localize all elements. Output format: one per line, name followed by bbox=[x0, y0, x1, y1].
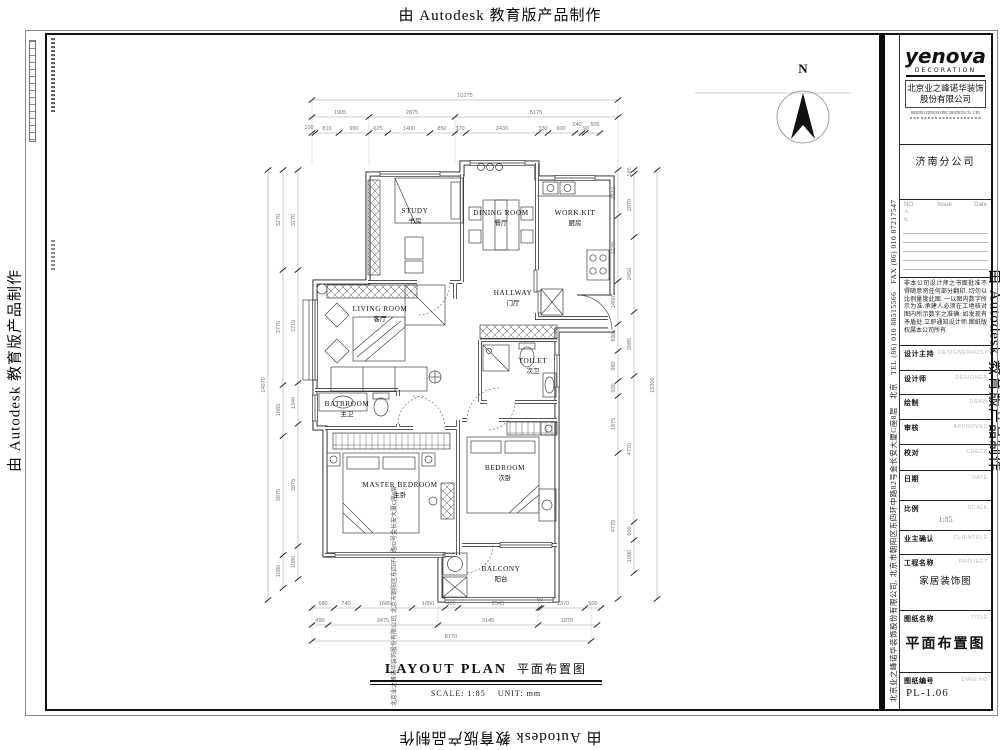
svg-text:505: 505 bbox=[590, 122, 599, 128]
svg-text:1870: 1870 bbox=[561, 618, 573, 624]
company-name-en: BEIJING YENOVO DECORATION CO., LTD bbox=[905, 110, 987, 115]
svg-text:1050: 1050 bbox=[422, 601, 434, 607]
field-designer: 设计师DESIGNER bbox=[900, 371, 991, 395]
svg-text:890: 890 bbox=[611, 332, 617, 341]
room-label-bathroom-zh: 主卫 bbox=[341, 409, 355, 418]
svg-text:900: 900 bbox=[556, 126, 565, 132]
layout-plan-title: LAYOUT PLAN 平面布置图 SCALE: 1:85 UNIT: mm bbox=[370, 660, 602, 698]
autodesk-watermark-left: 由 Autodesk 教育版产品制作 bbox=[4, 261, 25, 481]
room-label-workkit-zh: 厨房 bbox=[569, 218, 582, 227]
svg-text:1080: 1080 bbox=[627, 550, 633, 562]
sheet-border-top bbox=[45, 33, 993, 35]
room-label-dining-zh: 餐厅 bbox=[495, 218, 509, 227]
north-arrow: N bbox=[695, 61, 851, 143]
doors bbox=[398, 270, 616, 573]
cad-sheet: { "watermark": "由 Autodesk 教育版产品制作", "no… bbox=[0, 0, 1000, 750]
svg-text:90: 90 bbox=[583, 126, 589, 132]
titleblock-revision-section: NO. Issue Date A K bbox=[900, 200, 991, 278]
svg-text:1340: 1340 bbox=[291, 397, 297, 409]
svg-text:1665: 1665 bbox=[276, 404, 282, 416]
svg-text:3475: 3475 bbox=[377, 618, 389, 624]
svg-text:240: 240 bbox=[572, 122, 581, 128]
field-title: 图纸名称TITLE 平面布置图 bbox=[900, 611, 991, 673]
svg-text:3145: 3145 bbox=[482, 618, 494, 624]
svg-text:2085: 2085 bbox=[627, 338, 633, 350]
svg-text:2545: 2545 bbox=[492, 601, 504, 607]
room-label-hallway: HALLWAY bbox=[494, 289, 533, 297]
windows bbox=[313, 161, 596, 603]
title-block: yenova DECORATION 北京业之峰诺华装饰 股份有限公司 BEIJI… bbox=[900, 33, 991, 711]
fold-mark-bar bbox=[879, 33, 885, 711]
rev-empty-lines bbox=[903, 225, 988, 270]
room-label-toilet: TOILET bbox=[519, 357, 548, 365]
titleblock-note-section: 非本公司设计师之书面批准不得随意将任何部分翻印. 切勿以比例量度此图. 一以图内… bbox=[900, 278, 991, 346]
svg-text:8770: 8770 bbox=[445, 634, 457, 640]
svg-text:3270: 3270 bbox=[291, 214, 297, 226]
svg-text:600: 600 bbox=[627, 526, 633, 535]
svg-text:10275: 10275 bbox=[457, 93, 473, 99]
svg-text:3975: 3975 bbox=[291, 479, 297, 491]
room-label-study: STUDY bbox=[402, 207, 429, 215]
field-check: 校对CHECK bbox=[900, 445, 991, 471]
svg-text:100: 100 bbox=[304, 125, 313, 131]
svg-text:1080: 1080 bbox=[291, 556, 297, 568]
field-approved: 审核APPROVED bbox=[900, 420, 991, 445]
svg-text:2875: 2875 bbox=[406, 110, 418, 116]
branch-name: 济南分公司 bbox=[900, 145, 991, 168]
svg-text:500: 500 bbox=[588, 601, 597, 607]
svg-text:490: 490 bbox=[315, 618, 324, 624]
room-label-hallway-zh: 门厅 bbox=[507, 298, 521, 307]
titleblock-branch-section: 济南分公司 bbox=[900, 145, 991, 200]
margin-scale-ruler bbox=[29, 40, 36, 142]
room-label-living-zh: 客厅 bbox=[374, 314, 388, 323]
svg-text:14070: 14070 bbox=[261, 377, 267, 393]
autodesk-watermark-top: 由 Autodesk 教育版产品制作 bbox=[0, 4, 1000, 25]
room-label-balcony-zh: 阳台 bbox=[495, 574, 508, 583]
layout-plan-scale-line: SCALE: 1:85 UNIT: mm bbox=[370, 689, 602, 698]
svg-text:680: 680 bbox=[318, 601, 327, 607]
field-clientele: 业主确认CLIENTELE bbox=[900, 531, 991, 555]
rev-row: K bbox=[900, 216, 991, 224]
field-dwg-no: 图纸编号DWG.NO PL-1.06 bbox=[900, 673, 991, 711]
north-label: N bbox=[798, 61, 808, 76]
room-label-bedroom-zh: 次卧 bbox=[499, 473, 513, 482]
sheet-border-right bbox=[991, 33, 993, 711]
svg-text:1875: 1875 bbox=[611, 418, 617, 430]
titleblock-logo-section: yenova DECORATION 北京业之峰诺华装饰 股份有限公司 BEIJI… bbox=[900, 33, 991, 145]
svg-text:3770: 3770 bbox=[276, 321, 282, 333]
yenova-logo-subtitle: DECORATION bbox=[906, 67, 985, 77]
field-draw: 绘制DRAW bbox=[900, 395, 991, 420]
svg-text:980: 980 bbox=[611, 361, 617, 370]
layout-plan-zh: 平面布置图 bbox=[517, 660, 587, 677]
room-label-dining: DINING ROOM bbox=[473, 209, 529, 217]
svg-text:420: 420 bbox=[446, 601, 455, 607]
svg-text:4770: 4770 bbox=[627, 443, 633, 455]
autodesk-watermark-bottom: 由 Autodesk 教育版产品制作 bbox=[360, 728, 640, 749]
company-name-box: 北京业之峰诺华装饰 股份有限公司 bbox=[905, 80, 986, 108]
sheet-border-left bbox=[45, 33, 47, 711]
field-designer-host: 设计主持DESIGNERHOST bbox=[900, 346, 991, 371]
room-label-workkit: WORK.KIT bbox=[555, 209, 596, 217]
field-project: 工程名称PROJECT 家居装饰图 bbox=[900, 555, 991, 611]
sheet-border-bottom bbox=[45, 709, 993, 711]
svg-text:1905: 1905 bbox=[334, 110, 346, 116]
svg-text:370: 370 bbox=[455, 126, 464, 132]
svg-text:2140: 2140 bbox=[611, 242, 617, 254]
svg-text:3875: 3875 bbox=[276, 489, 282, 501]
room-label-balcony: BALCONY bbox=[482, 565, 521, 573]
svg-text:2070: 2070 bbox=[627, 199, 633, 211]
rev-col-issue: Issue bbox=[937, 202, 951, 208]
field-date: 日期DATE bbox=[900, 471, 991, 501]
svg-text:4770: 4770 bbox=[611, 520, 617, 532]
room-label-study-zh: 书房 bbox=[409, 216, 422, 225]
svg-text:5175: 5175 bbox=[530, 110, 542, 116]
company-contact-vertical: 北京业之峰诺华装饰股份有限公司, 北京市朝阳区东四环中路82号金长安大厦C座8层… bbox=[888, 40, 899, 702]
svg-text:990: 990 bbox=[349, 126, 358, 132]
svg-text:1400: 1400 bbox=[611, 296, 617, 308]
svg-text:1510: 1510 bbox=[611, 187, 617, 199]
layout-plan-rule bbox=[370, 680, 602, 685]
svg-text:740: 740 bbox=[341, 601, 350, 607]
room-label-master-zh: 主卧 bbox=[394, 490, 408, 499]
svg-text:330: 330 bbox=[538, 126, 547, 132]
svg-text:15300: 15300 bbox=[650, 377, 656, 393]
svg-text:810: 810 bbox=[322, 126, 331, 132]
svg-text:3270: 3270 bbox=[276, 214, 282, 226]
svg-text:1080: 1080 bbox=[276, 565, 282, 577]
floor-plan-svg: N bbox=[255, 55, 870, 660]
svg-text:1400: 1400 bbox=[403, 126, 415, 132]
rev-col-date: Date bbox=[974, 202, 987, 208]
svg-text:850: 850 bbox=[437, 126, 446, 132]
room-label-toilet-zh: 次卫 bbox=[527, 366, 541, 375]
svg-text:625: 625 bbox=[373, 126, 382, 132]
room-label-bathroom: BATRROOM bbox=[325, 400, 370, 408]
svg-text:500: 500 bbox=[611, 383, 617, 392]
field-scale: 比例SCALE 1:85 bbox=[900, 501, 991, 531]
svg-text:1685: 1685 bbox=[379, 601, 391, 607]
svg-text:60: 60 bbox=[537, 597, 543, 603]
margin-micro-text bbox=[51, 38, 55, 114]
rev-row: A bbox=[900, 208, 991, 216]
layout-plan-en: LAYOUT PLAN bbox=[385, 662, 507, 678]
svg-text:2450: 2450 bbox=[627, 268, 633, 280]
svg-text:145: 145 bbox=[627, 167, 633, 176]
svg-text:2430: 2430 bbox=[496, 126, 508, 132]
walls-interior bbox=[315, 163, 612, 555]
room-label-living: LIVING ROOM bbox=[353, 305, 408, 313]
margin-micro-text2 bbox=[51, 240, 55, 270]
yenova-logo: yenova bbox=[900, 45, 991, 67]
company-tagline-fineprint bbox=[910, 117, 981, 119]
room-label-bedroom: BEDROOM bbox=[485, 464, 525, 472]
svg-text:1370: 1370 bbox=[557, 601, 569, 607]
room-label-master: MASTER BEDROOM bbox=[362, 481, 437, 489]
svg-text:3710: 3710 bbox=[291, 320, 297, 332]
